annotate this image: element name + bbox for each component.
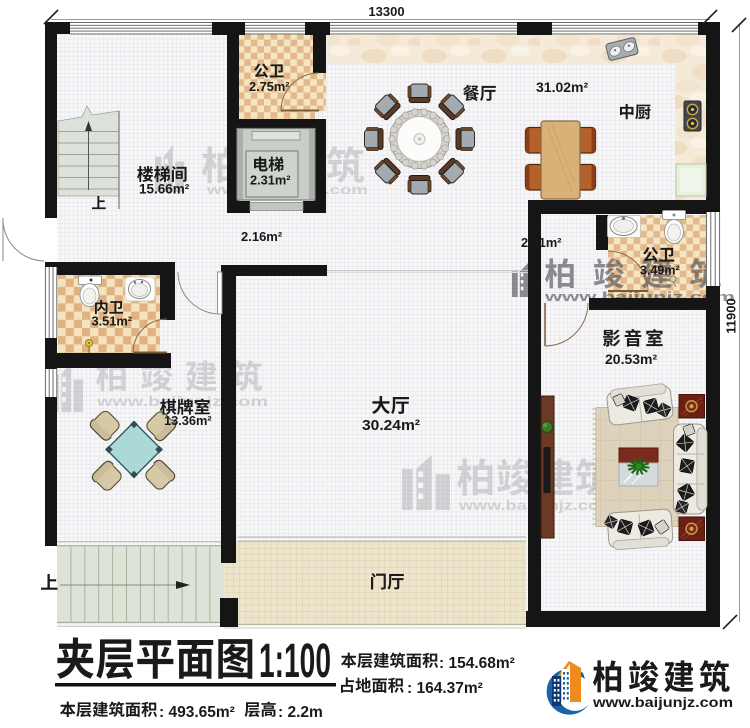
svg-text:: 164.37m²: : 164.37m² xyxy=(407,680,483,697)
svg-text:www.baijunjz.com: www.baijunjz.com xyxy=(592,695,733,710)
svg-text:2.31m²: 2.31m² xyxy=(250,173,291,188)
svg-text:2.16m²: 2.16m² xyxy=(241,229,283,244)
svg-text:11900: 11900 xyxy=(724,298,739,333)
svg-text:: 2.2m: : 2.2m xyxy=(278,704,323,721)
svg-text:15.66m²: 15.66m² xyxy=(139,182,190,197)
svg-text:3.51m²: 3.51m² xyxy=(92,314,133,329)
svg-text:: 154.68m²: : 154.68m² xyxy=(439,655,515,672)
svg-text:30.24m²: 30.24m² xyxy=(362,417,420,434)
svg-text:2.31m²: 2.31m² xyxy=(521,235,562,250)
svg-text:: 493.65m²: : 493.65m² xyxy=(159,704,235,721)
svg-text:3.49m²: 3.49m² xyxy=(640,264,680,278)
svg-text:13300: 13300 xyxy=(368,4,404,19)
svg-text:2.75m²: 2.75m² xyxy=(249,79,290,94)
svg-text:1:100: 1:100 xyxy=(259,635,331,688)
svg-text:31.02m²: 31.02m² xyxy=(536,79,588,95)
svg-text:20.53m²: 20.53m² xyxy=(605,351,657,367)
svg-text:13.36m²: 13.36m² xyxy=(164,413,212,428)
